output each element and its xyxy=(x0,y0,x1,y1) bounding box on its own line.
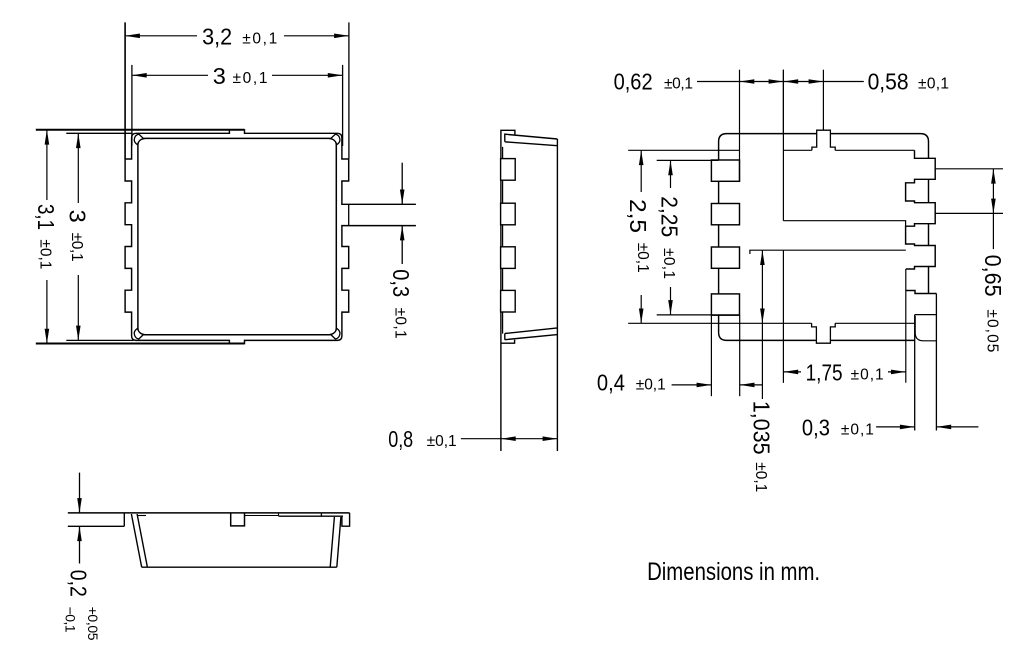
svg-text:Dimensions in mm.: Dimensions in mm. xyxy=(647,558,820,586)
svg-text:±0,05: ±0,05 xyxy=(984,309,1001,352)
svg-text:±0,1: ±0,1 xyxy=(68,233,85,262)
svg-text:2,25: 2,25 xyxy=(657,196,683,237)
svg-text:±0,1: ±0,1 xyxy=(851,367,884,384)
svg-text:1,035: 1,035 xyxy=(748,401,774,455)
svg-text:3: 3 xyxy=(213,63,226,89)
svg-text:0,58: 0,58 xyxy=(868,68,909,94)
svg-text:±0,1: ±0,1 xyxy=(752,462,769,492)
svg-text:−0,1: −0,1 xyxy=(63,607,79,633)
svg-text:±0,1: ±0,1 xyxy=(841,422,874,439)
svg-text:0,65: 0,65 xyxy=(980,255,1006,297)
svg-text:0,8: 0,8 xyxy=(388,426,413,452)
svg-text:+0,05: +0,05 xyxy=(85,607,101,641)
svg-text:±0,1: ±0,1 xyxy=(242,31,277,48)
svg-text:3,2: 3,2 xyxy=(202,24,232,50)
svg-text:±0,1: ±0,1 xyxy=(660,248,677,279)
svg-text:0,2: 0,2 xyxy=(66,570,92,597)
svg-text:±0,1: ±0,1 xyxy=(36,239,53,269)
svg-text:0,62: 0,62 xyxy=(614,68,653,94)
svg-text:3,1: 3,1 xyxy=(33,204,59,230)
svg-text:0,4: 0,4 xyxy=(597,370,625,396)
svg-text:1,75: 1,75 xyxy=(806,359,843,385)
svg-text:±0,1: ±0,1 xyxy=(918,75,949,92)
svg-text:2,5: 2,5 xyxy=(625,199,651,233)
svg-text:0,3: 0,3 xyxy=(802,414,830,440)
svg-text:3: 3 xyxy=(64,210,90,223)
svg-text:±0,1: ±0,1 xyxy=(636,377,666,394)
svg-text:±0,1: ±0,1 xyxy=(634,243,651,273)
svg-text:±0,1: ±0,1 xyxy=(664,75,693,92)
svg-text:±0,1: ±0,1 xyxy=(427,433,457,450)
svg-text:±0,1: ±0,1 xyxy=(233,70,268,87)
svg-text:±0,1: ±0,1 xyxy=(392,308,409,339)
svg-text:0,3: 0,3 xyxy=(388,269,414,297)
